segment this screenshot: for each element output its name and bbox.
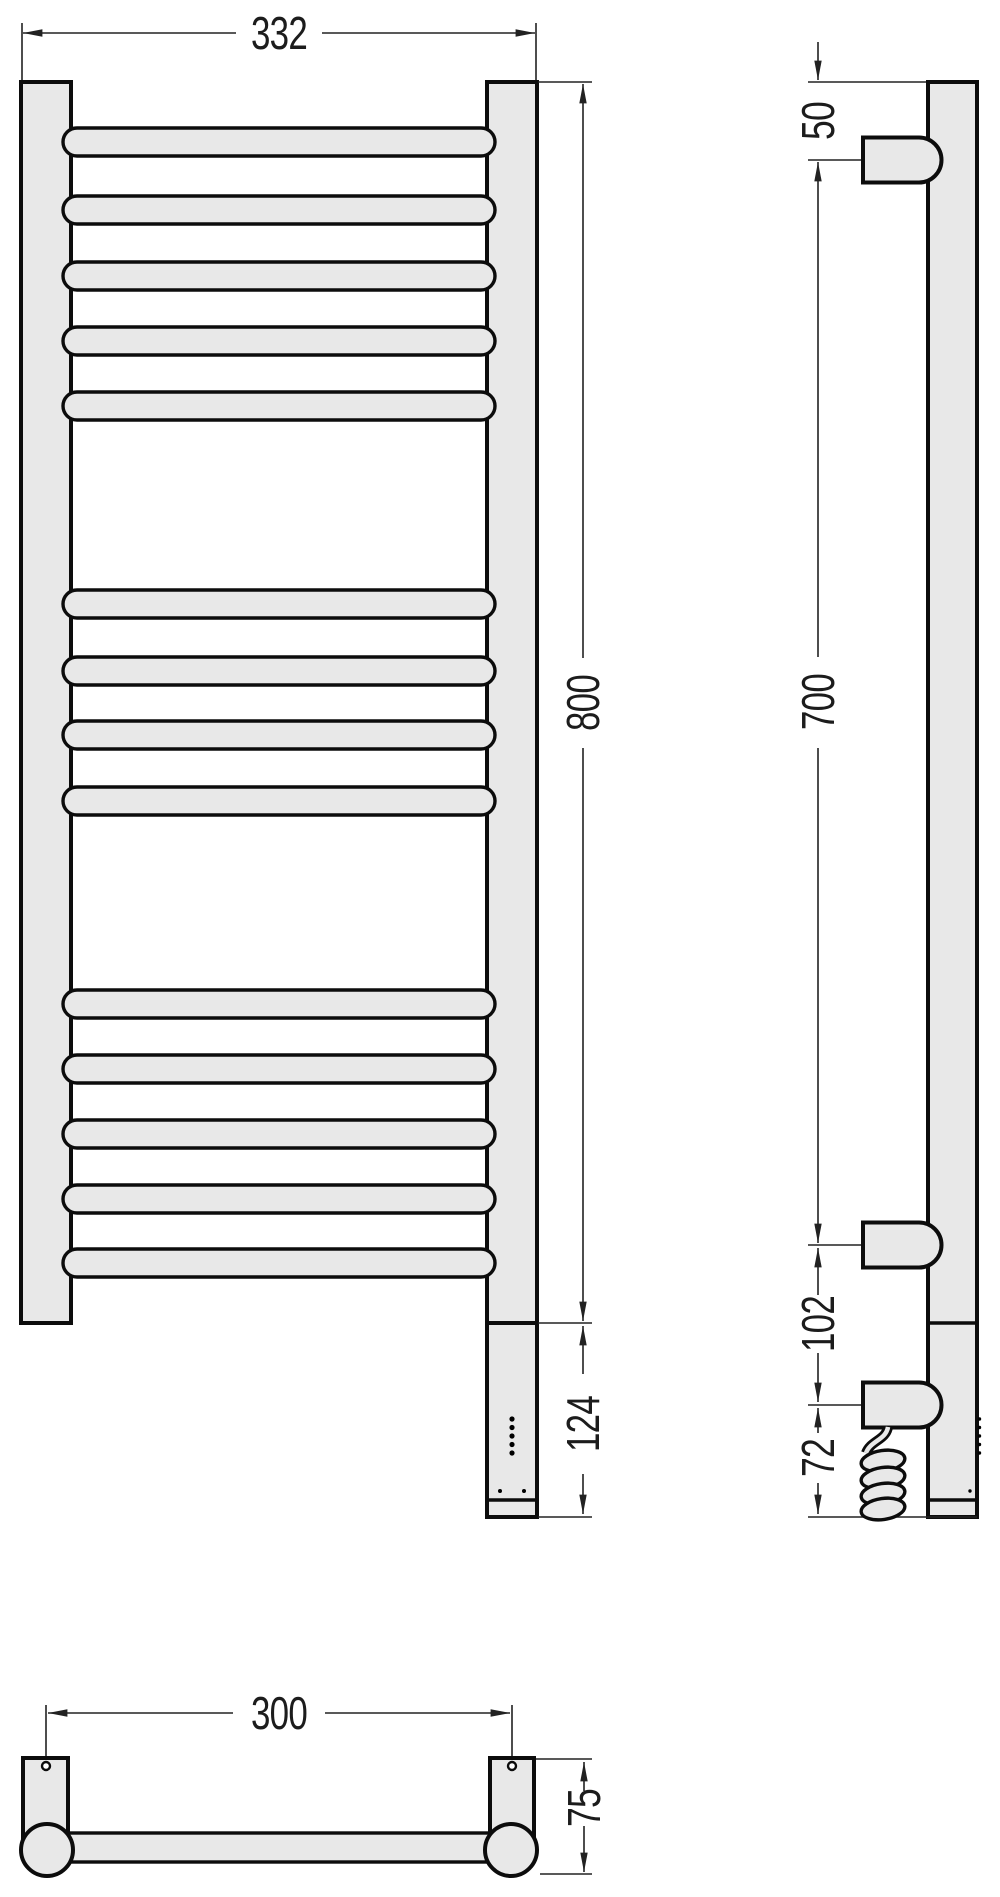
dim-front-height-800: 800	[538, 82, 609, 1323]
side-led-dot	[978, 1451, 981, 1454]
dim-label-front-width: 332	[251, 7, 307, 59]
bottom-view	[21, 1758, 537, 1876]
front-rung-8	[63, 721, 495, 749]
led-dot	[509, 1450, 514, 1455]
dim-label-bottom-width: 300	[251, 1687, 307, 1739]
side-view	[863, 82, 981, 1517]
front-rungs	[63, 128, 495, 1277]
dim-label-side-bracket-span: 700	[792, 674, 844, 730]
dim-label-side-heater-gap: 72	[792, 1439, 844, 1477]
side-led-dot	[978, 1426, 981, 1429]
dim-bottom-depth-75: 75	[536, 1759, 610, 1874]
left-screw-hole	[42, 1762, 50, 1770]
dim-label-bottom-depth: 75	[558, 1789, 610, 1827]
drawing-canvas: 332 800 124 50 700	[0, 0, 1000, 1897]
dim-heater-height-124: 124	[538, 1326, 609, 1517]
front-rung-6	[63, 590, 495, 618]
side-led-dot	[978, 1434, 981, 1437]
power-cable	[860, 1427, 906, 1522]
front-rung-2	[63, 196, 495, 224]
front-rung-3	[63, 262, 495, 290]
side-led-dot	[978, 1417, 981, 1420]
right-screw-hole	[508, 1762, 516, 1770]
front-rung-12	[63, 1120, 495, 1148]
led-dot	[509, 1433, 514, 1438]
dim-label-heater-height: 124	[557, 1396, 609, 1452]
front-rung-13	[63, 1185, 495, 1213]
side-led-dot	[978, 1443, 981, 1446]
dim-label-front-height: 800	[557, 675, 609, 731]
side-rail	[928, 82, 977, 1517]
front-rung-5	[63, 392, 495, 420]
front-rung-1	[63, 128, 495, 156]
side-bracket-3	[863, 1383, 942, 1428]
screw-dot	[522, 1489, 526, 1493]
dim-bottom-width-300: 300	[46, 1687, 512, 1756]
screw-dot	[498, 1489, 502, 1493]
front-rung-10	[63, 990, 495, 1018]
bottom-crossbar	[47, 1833, 511, 1862]
led-dot	[509, 1425, 514, 1430]
side-bracket-1	[863, 138, 942, 183]
front-rung-11	[63, 1055, 495, 1083]
dim-side-lower-gap-102: 102	[792, 1248, 861, 1405]
bottom-left-post	[21, 1824, 73, 1876]
dim-side-bracket-span-700: 700	[792, 162, 861, 1245]
bottom-right-post	[485, 1824, 537, 1876]
front-heater-unit	[487, 1323, 537, 1517]
front-rung-7	[63, 657, 495, 685]
dim-label-side-top-offset: 50	[792, 102, 844, 140]
dim-label-side-lower-gap: 102	[792, 1296, 844, 1352]
side-bracket-2	[863, 1223, 942, 1268]
dim-front-width-332: 332	[22, 7, 536, 80]
cable-coil	[860, 1448, 906, 1523]
led-dot	[509, 1416, 514, 1421]
led-dot	[509, 1442, 514, 1447]
front-rung-4	[63, 327, 495, 355]
front-rung-14	[63, 1249, 495, 1277]
front-view	[21, 82, 537, 1517]
side-screw-dot	[968, 1489, 971, 1492]
front-rung-9	[63, 787, 495, 815]
